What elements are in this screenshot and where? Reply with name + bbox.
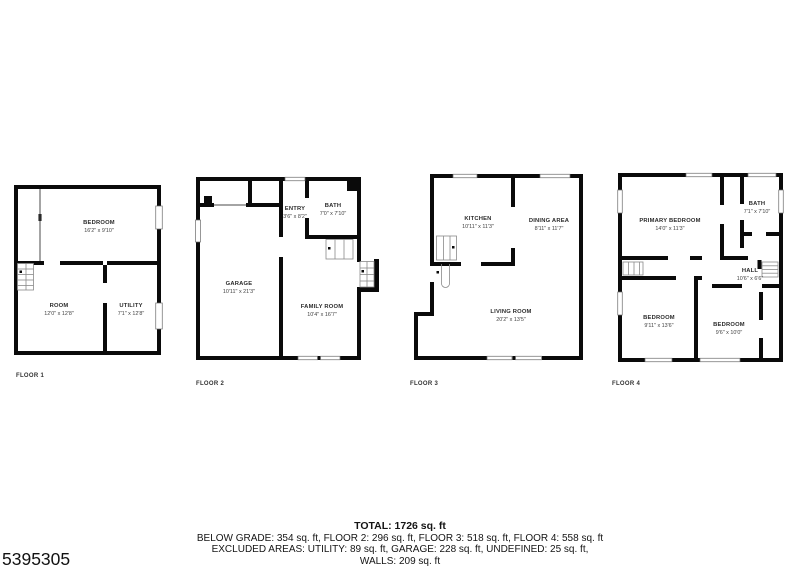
room-dims-dining-area-f3: 8'11" x 11'7": [535, 226, 564, 232]
room-dims-entry-f2: 3'6" x 8'2": [283, 214, 307, 220]
room-dims-living-room-f3: 20'2" x 13'5": [496, 317, 526, 323]
floor-3-label: FLOOR 3: [410, 381, 438, 387]
floor-1-plan: BEDROOM 16'2" x 9'10" ROOM 12'0" x 12'8"…: [14, 185, 162, 379]
floor-areas-text: BELOW GRADE: 354 sq. ft, FLOOR 2: 296 sq…: [0, 533, 800, 545]
floor-4-label: FLOOR 4: [612, 381, 640, 387]
room-dims-family-room-f2: 10'4" x 16'7": [307, 312, 337, 318]
floor-4-stairs-icon: [623, 262, 643, 275]
total-area-text: TOTAL: 1726 sq. ft: [0, 521, 800, 533]
room-label-dining-area-f3: DINING AREA: [529, 218, 570, 224]
floor-1-stairs-icon: [18, 264, 34, 291]
floor-2-walls: [196, 177, 379, 360]
floor-2-label: FLOOR 2: [196, 381, 224, 387]
floorplan-page: BEDROOM 16'2" x 9'10" ROOM 12'0" x 12'8"…: [0, 0, 800, 575]
room-label-hall-f4: HALL: [742, 268, 759, 274]
room-dims-bedroom-right-f4: 9'6" x 10'0": [716, 330, 743, 336]
floor-3-plan: KITCHEN 10'11" x 11'3" DINING AREA 8'11"…: [410, 174, 583, 387]
floorplan-drawing: BEDROOM 16'2" x 9'10" ROOM 12'0" x 12'8"…: [0, 0, 800, 575]
room-dims-bath-f4: 7'1" x 7'10": [744, 209, 771, 215]
floor-1-label: FLOOR 1: [16, 373, 44, 379]
room-dims-garage-f2: 10'11" x 21'3": [223, 289, 255, 295]
room-dims-primary-bedroom-f4: 14'0" x 11'3": [655, 226, 684, 232]
room-label-living-room-f3: LIVING ROOM: [490, 309, 531, 315]
floor-1-walls: [14, 185, 161, 355]
floor-4-plan: PRIMARY BEDROOM 14'0" x 11'3" BATH 7'1" …: [612, 173, 783, 387]
room-dims-hall-f4: 10'6" x 6'6": [737, 276, 764, 282]
room-label-family-room-f2: FAMILY ROOM: [301, 304, 343, 310]
walls-area-text: WALLS: 209 sq. ft: [0, 556, 800, 568]
room-label-bath-f4: BATH: [749, 201, 765, 207]
listing-id: 5395305: [2, 549, 70, 570]
room-dims-bedroom-f1: 16'2" x 9'10": [84, 228, 114, 234]
room-dims-room-f1: 12'0" x 12'8": [44, 311, 74, 317]
floor-2-stairs-icon: [326, 240, 374, 288]
room-label-room-f1: ROOM: [50, 303, 69, 309]
room-dims-bedroom-left-f4: 9'11" x 13'6": [644, 323, 673, 329]
room-label-entry-f2: ENTRY: [285, 206, 305, 212]
room-label-garage-f2: GARAGE: [226, 281, 253, 287]
room-label-bedroom-left-f4: BEDROOM: [643, 315, 675, 321]
room-label-utility-f1: UTILITY: [119, 303, 142, 309]
floor-3-stairs-icon: [437, 236, 457, 288]
room-label-bath-f2: BATH: [325, 203, 341, 209]
floor-4-closet-icon: [762, 262, 778, 277]
room-label-bedroom-f1: BEDROOM: [83, 220, 115, 226]
excluded-areas-text: EXCLUDED AREAS: UTILITY: 89 sq. ft, GARA…: [0, 544, 800, 556]
room-label-primary-bedroom-f4: PRIMARY BEDROOM: [639, 218, 700, 224]
room-label-bedroom-right-f4: BEDROOM: [713, 322, 745, 328]
room-dims-bath-f2: 7'0" x 7'10": [320, 211, 347, 217]
floor-2-plan: ENTRY 3'6" x 8'2" BATH 7'0" x 7'10" GARA…: [196, 177, 380, 387]
floor-3-walls: [414, 174, 583, 360]
room-label-kitchen-f3: KITCHEN: [464, 216, 491, 222]
area-summary: TOTAL: 1726 sq. ft BELOW GRADE: 354 sq. …: [0, 521, 800, 567]
room-dims-utility-f1: 7'1" x 12'8": [118, 311, 145, 317]
room-dims-kitchen-f3: 10'11" x 11'3": [462, 224, 494, 230]
